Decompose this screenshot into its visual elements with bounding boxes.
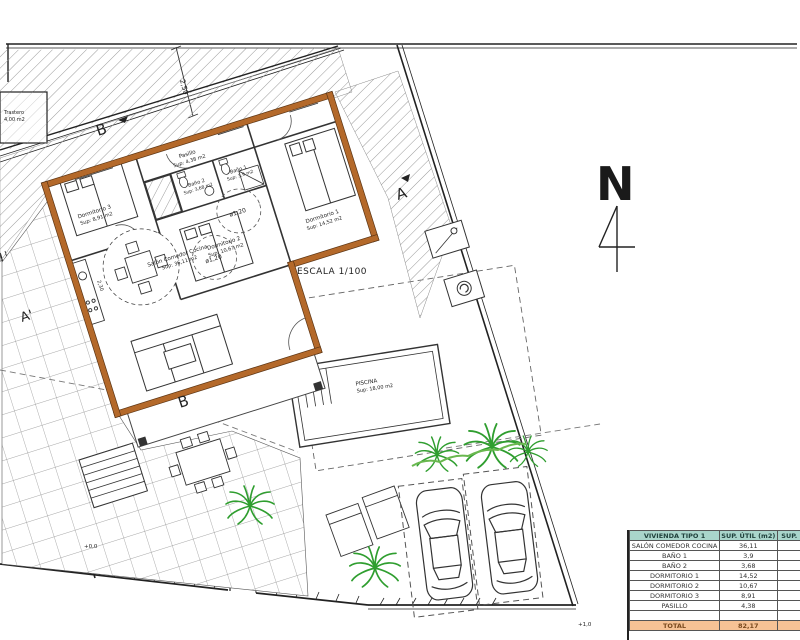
level-gate: +0,0 xyxy=(84,544,98,550)
row-dorm2-value: 10,67 xyxy=(720,581,777,591)
north-arrow: N xyxy=(596,157,635,272)
trastero-shed: Trastero 4,00 m2 xyxy=(0,92,47,143)
total-label: TOTAL xyxy=(630,621,720,631)
parking xyxy=(398,466,544,617)
row-dorm3-label: DORMITORIO 3 xyxy=(630,591,720,601)
total-value: 82,17 xyxy=(720,621,777,631)
level-corner: +1,0 xyxy=(578,622,592,628)
row-pasillo-label: PASILLO xyxy=(630,601,720,611)
sunbeds xyxy=(325,486,411,556)
row-dorm2-label: DORMITORIO 2 xyxy=(630,581,720,591)
areas-table-header-vivienda: VIVIENDA TIPO 1 xyxy=(630,531,720,541)
trastero-label: Trastero xyxy=(3,110,24,116)
row-pasillo-value: 4,38 xyxy=(720,601,777,611)
row-bano2-value: 3,68 xyxy=(720,561,777,571)
row-bano2-label: BAÑO 2 xyxy=(630,561,720,571)
areas-table-header-sup-util: SUP. ÚTIL (m2) xyxy=(720,531,777,541)
table-row: BAÑO 2 3,68 xyxy=(630,561,800,571)
row-salon-label: SALÓN COMEDOR COCINA xyxy=(630,541,720,551)
car-1 xyxy=(415,486,474,601)
scale-label: ESCALA 1/100 xyxy=(297,267,367,277)
row-bano1-value: 3,9 xyxy=(720,551,777,561)
areas-table-header-sup: SUP. xyxy=(777,531,800,541)
north-label: N xyxy=(596,157,635,211)
table-row: SALÓN COMEDOR COCINA 36,11 xyxy=(630,541,800,551)
table-row: PASILLO 4,38 xyxy=(630,601,800,611)
table-total-row: TOTAL 82,17 xyxy=(630,621,800,631)
trastero-sup: 4,00 m2 xyxy=(4,117,25,123)
table-row: DORMITORIO 1 14,52 xyxy=(630,571,800,581)
table-row: DORMITORIO 3 8,91 xyxy=(630,591,800,601)
areas-table: VIVIENDA TIPO 1 SUP. ÚTIL (m2) SUP. SALÓ… xyxy=(627,530,800,640)
row-salon-value: 36,11 xyxy=(720,541,777,551)
floor-plan-page: Trastero 4,00 m2 2,50 PISCINA Sup: 18,00… xyxy=(0,0,800,640)
table-row-empty xyxy=(630,611,800,621)
row-dorm3-value: 8,91 xyxy=(720,591,777,601)
row-dorm1-value: 14,52 xyxy=(720,571,777,581)
areas-table-header-row: VIVIENDA TIPO 1 SUP. ÚTIL (m2) SUP. xyxy=(630,531,800,541)
table-row: DORMITORIO 2 10,67 xyxy=(630,581,800,591)
table-row: BAÑO 1 3,9 xyxy=(630,551,800,561)
row-dorm1-label: DORMITORIO 1 xyxy=(630,571,720,581)
row-bano1-label: BAÑO 1 xyxy=(630,551,720,561)
palm-tree-2 xyxy=(350,547,400,587)
